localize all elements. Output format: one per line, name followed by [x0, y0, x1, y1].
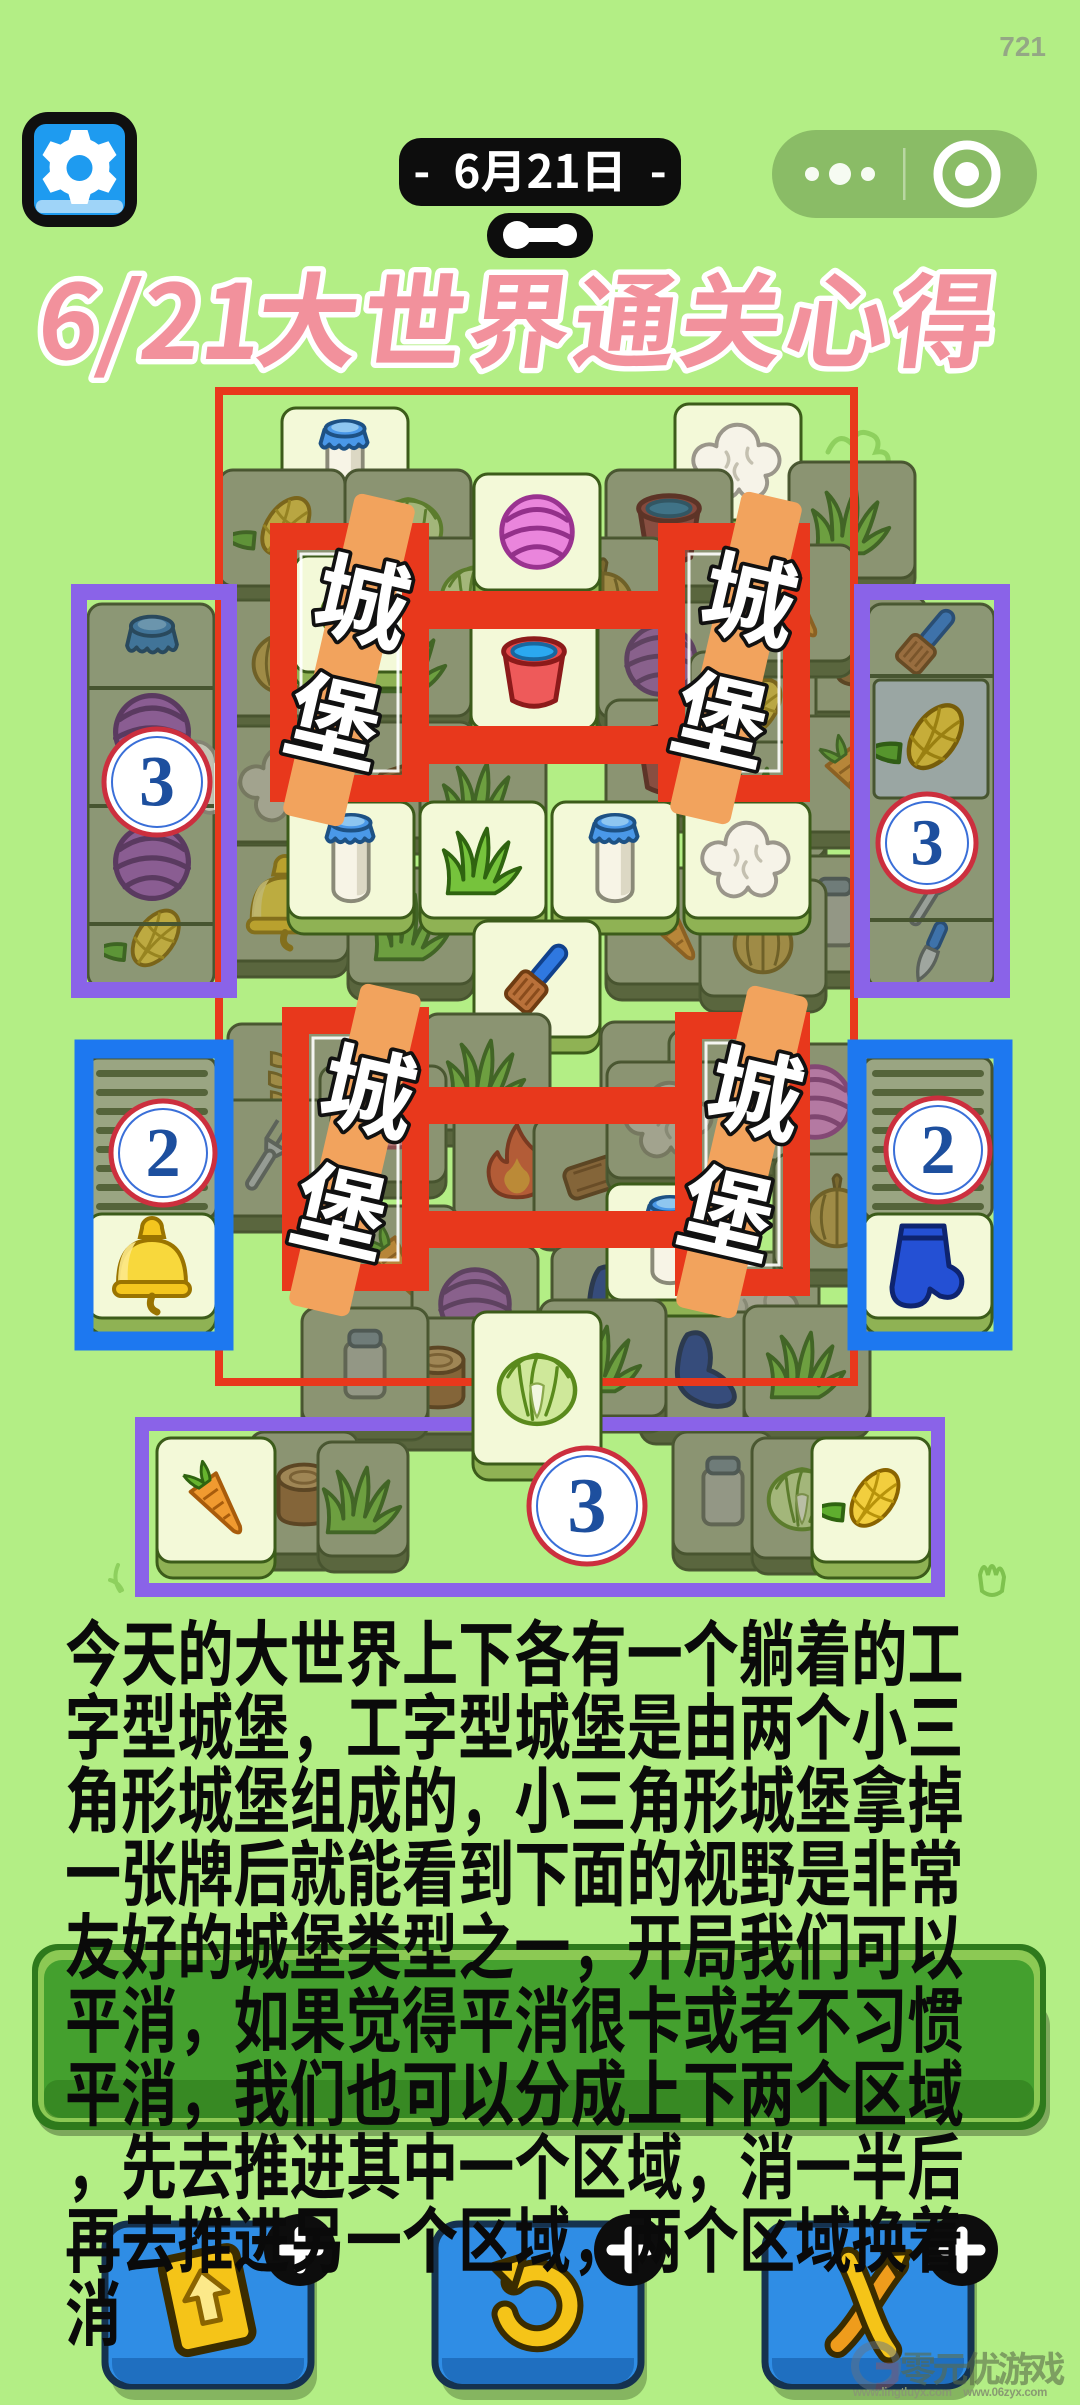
svg-text:2: 2 — [920, 1111, 955, 1189]
svg-text:721: 721 — [999, 31, 1046, 62]
svg-text:www.lingtluyx.com www.06zyx: www.lingtluyx.com www.06zyx.com — [852, 2387, 1047, 2399]
svg-text:3: 3 — [139, 742, 175, 821]
svg-text:3: 3 — [910, 807, 943, 880]
svg-text:3: 3 — [567, 1462, 606, 1549]
svg-text:2: 2 — [145, 1114, 180, 1192]
